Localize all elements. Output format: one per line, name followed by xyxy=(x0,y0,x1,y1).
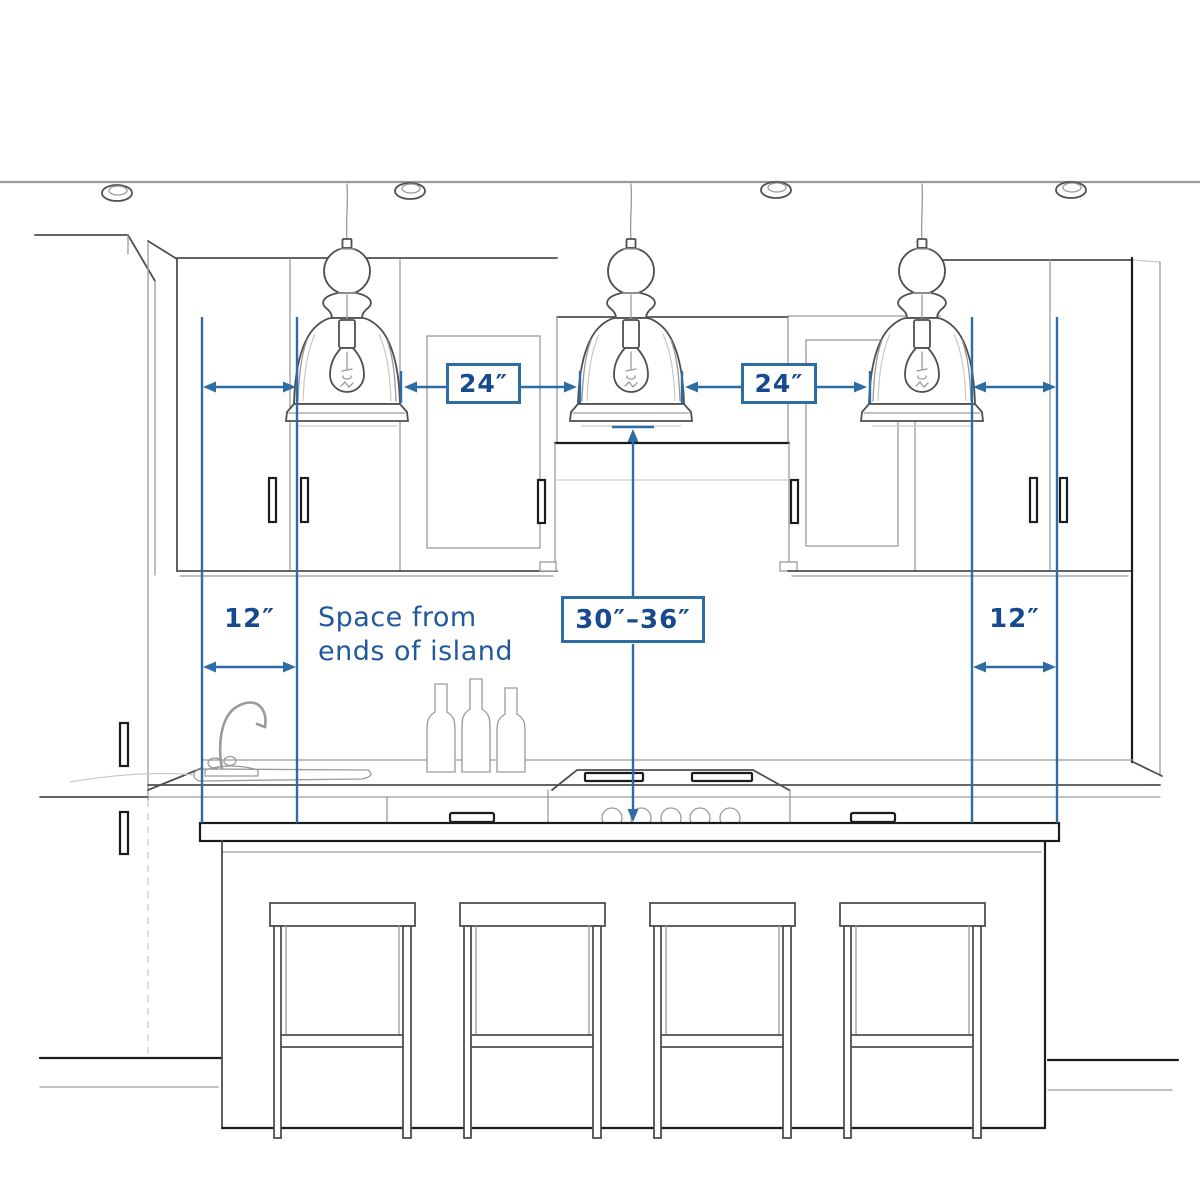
pendant-spacing-diagram: 24″ 24″ 30″–36″ 12″ 12″ Space from ends … xyxy=(0,0,1200,1200)
recessed-light-icon xyxy=(102,185,132,201)
bar-stool xyxy=(840,903,985,1138)
recessed-light-icon xyxy=(395,183,425,199)
dimension-value: 24″ xyxy=(459,369,508,398)
dimension-label-12-right: 12″ xyxy=(967,604,1062,634)
bar-stool xyxy=(270,903,415,1138)
left-wall xyxy=(35,235,222,1087)
faucet xyxy=(205,703,265,776)
bar-stool xyxy=(460,903,605,1138)
bar-stools xyxy=(270,903,985,1138)
wine-bottles xyxy=(427,679,525,772)
recessed-light-icon xyxy=(761,182,791,198)
island xyxy=(200,808,1178,1128)
recessed-light-icon xyxy=(1056,182,1086,198)
bar-stool xyxy=(650,903,795,1138)
note-line-2: ends of island xyxy=(318,635,548,669)
dimension-value: 30″–36″ xyxy=(575,605,691,635)
island-spacing-note: Space from ends of island xyxy=(318,601,548,669)
pendant-light-left xyxy=(286,184,408,426)
pendant-light-right xyxy=(861,184,983,426)
cooktop xyxy=(552,770,789,790)
dimension-label-30-36: 30″–36″ xyxy=(561,596,705,643)
dimension-label-24-right: 24″ xyxy=(741,363,817,404)
dimension-label-24-left: 24″ xyxy=(446,363,521,404)
dimension-value: 24″ xyxy=(755,369,804,398)
note-line-1: Space from xyxy=(318,601,548,635)
dimension-label-12-left: 12″ xyxy=(202,604,297,634)
ceiling xyxy=(0,182,1200,201)
pendant-light-center xyxy=(570,184,692,426)
